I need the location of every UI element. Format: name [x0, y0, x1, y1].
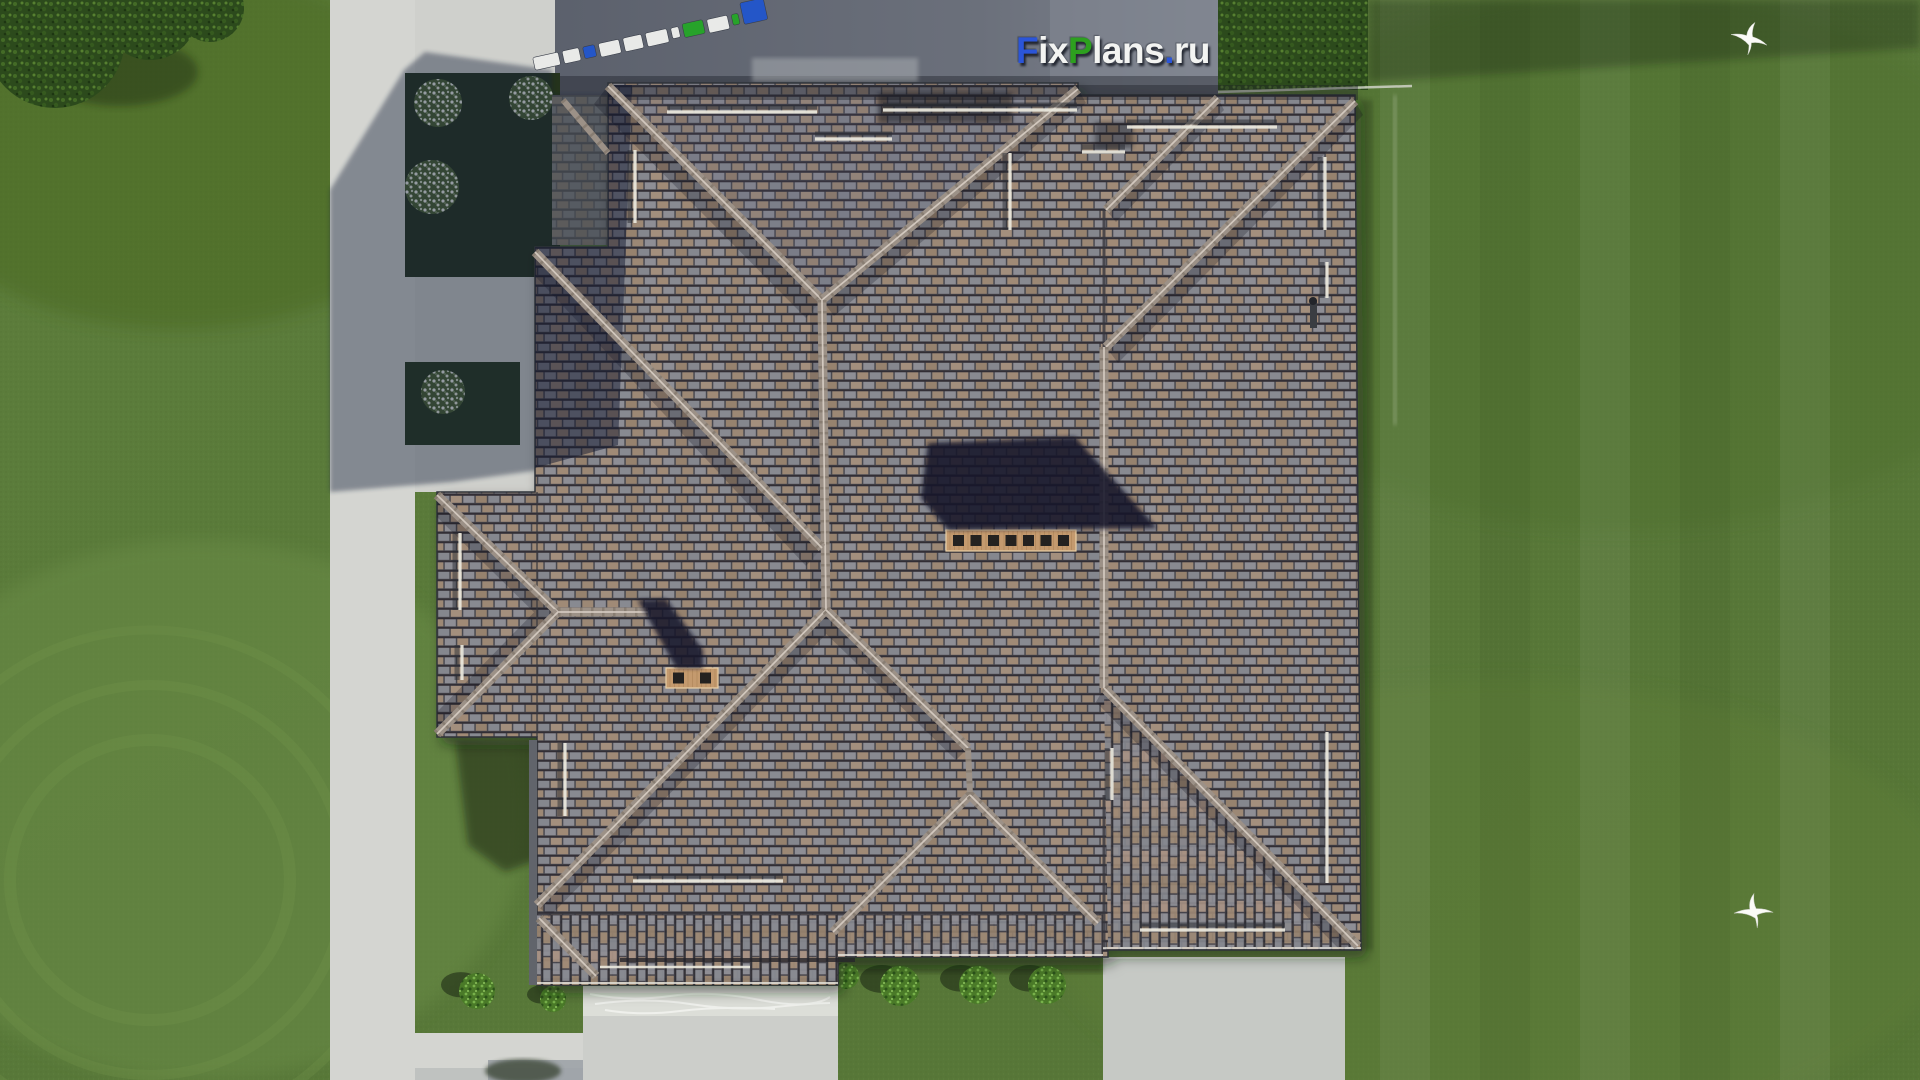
watermark-letter: . — [1164, 30, 1174, 71]
house-roof — [437, 83, 1363, 985]
garden-bush — [459, 973, 495, 1009]
garden-bush — [540, 986, 566, 1012]
chimney-flue — [953, 535, 964, 546]
chimney-flue — [1058, 535, 1069, 546]
parked-car — [582, 45, 596, 59]
chimney-flue — [673, 673, 684, 684]
chimney-flue — [1023, 535, 1034, 546]
render-canvas — [0, 0, 1920, 1080]
eave-shadow-patch — [878, 93, 1012, 123]
watermark-letter: P — [1068, 30, 1092, 71]
watermark-letter: ru — [1174, 30, 1210, 71]
driveway-pad — [1103, 957, 1345, 1080]
hedge — [1218, 0, 1368, 90]
aerial-house-render: FixPlans.ru — [0, 0, 1920, 1080]
chimney-large — [946, 530, 1076, 551]
chimney-flue — [1041, 535, 1052, 546]
garden-bush — [1028, 966, 1066, 1004]
chimney-flue — [988, 535, 999, 546]
chimney-flue — [1006, 535, 1017, 546]
chimney-flue — [700, 673, 711, 684]
vent-pipe — [1309, 297, 1317, 328]
watermark-letter: lans — [1092, 30, 1164, 71]
chimney-small — [666, 668, 718, 688]
chimney-flue — [971, 535, 982, 546]
road-light-patch — [752, 58, 918, 82]
garden-bush — [880, 966, 920, 1006]
watermark-letter: F — [1016, 30, 1038, 71]
watermark-letter: ix — [1038, 30, 1068, 71]
garden-bush — [959, 966, 997, 1004]
wall-sliver — [529, 740, 537, 985]
watermark-logo: FixPlans.ru — [1016, 30, 1210, 72]
